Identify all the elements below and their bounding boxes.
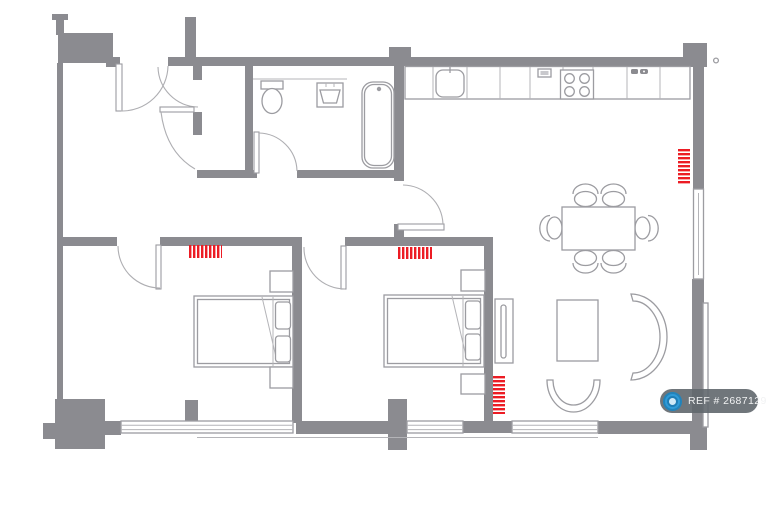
floorplan-page: REF # 2687129 [0, 0, 768, 512]
kitchen-sink-icon [436, 67, 464, 98]
bedroom1-door [118, 245, 161, 289]
armchair-icon [631, 294, 667, 380]
bedside-table-icon [270, 367, 293, 388]
double-bed-icon [384, 295, 484, 367]
vestibule-door [158, 67, 198, 107]
dining-chair-icon [573, 251, 598, 274]
coffee-table-icon [557, 300, 598, 361]
dining-table-icon [562, 207, 635, 250]
corner-marker-circle [714, 58, 719, 63]
bathtub-icon [362, 82, 394, 168]
dining-chair-icon [635, 216, 658, 242]
double-bed-icon [194, 296, 293, 367]
bedside-table-icon [270, 271, 293, 292]
living-furniture [495, 184, 667, 412]
kitchen-fixtures [405, 67, 690, 100]
bathroom-fixtures [253, 79, 394, 168]
window-bedroom1 [121, 421, 293, 433]
watermark-badge: REF # 2687129 [660, 389, 758, 413]
dining-chair-icon [540, 216, 562, 242]
radiators [189, 149, 684, 414]
tv-sideboard-icon [495, 299, 513, 363]
dining-chair-icon [601, 251, 626, 274]
bedroom2-door [304, 246, 346, 289]
washbasin-icon [317, 83, 343, 107]
reference-number: REF # 2687129 [688, 395, 767, 407]
bedside-table-icon [461, 374, 485, 394]
curved-chair-icon [547, 380, 600, 412]
window-bedroom2 [407, 421, 463, 433]
bedside-table-icon [461, 270, 485, 291]
bedroom1-furniture [194, 271, 293, 388]
window-living [512, 421, 598, 433]
dining-chair-icon [573, 184, 598, 207]
dining-chair-icon [601, 184, 626, 207]
camera-icon [663, 392, 682, 411]
living-room-door [398, 185, 444, 230]
bedroom2-furniture [384, 270, 485, 394]
bathroom-door [254, 132, 297, 173]
hall-door [160, 107, 195, 169]
toilet-icon [261, 81, 283, 114]
floorplan-drawing [0, 0, 768, 512]
entry-door [116, 64, 168, 111]
hob-icon [561, 70, 594, 99]
